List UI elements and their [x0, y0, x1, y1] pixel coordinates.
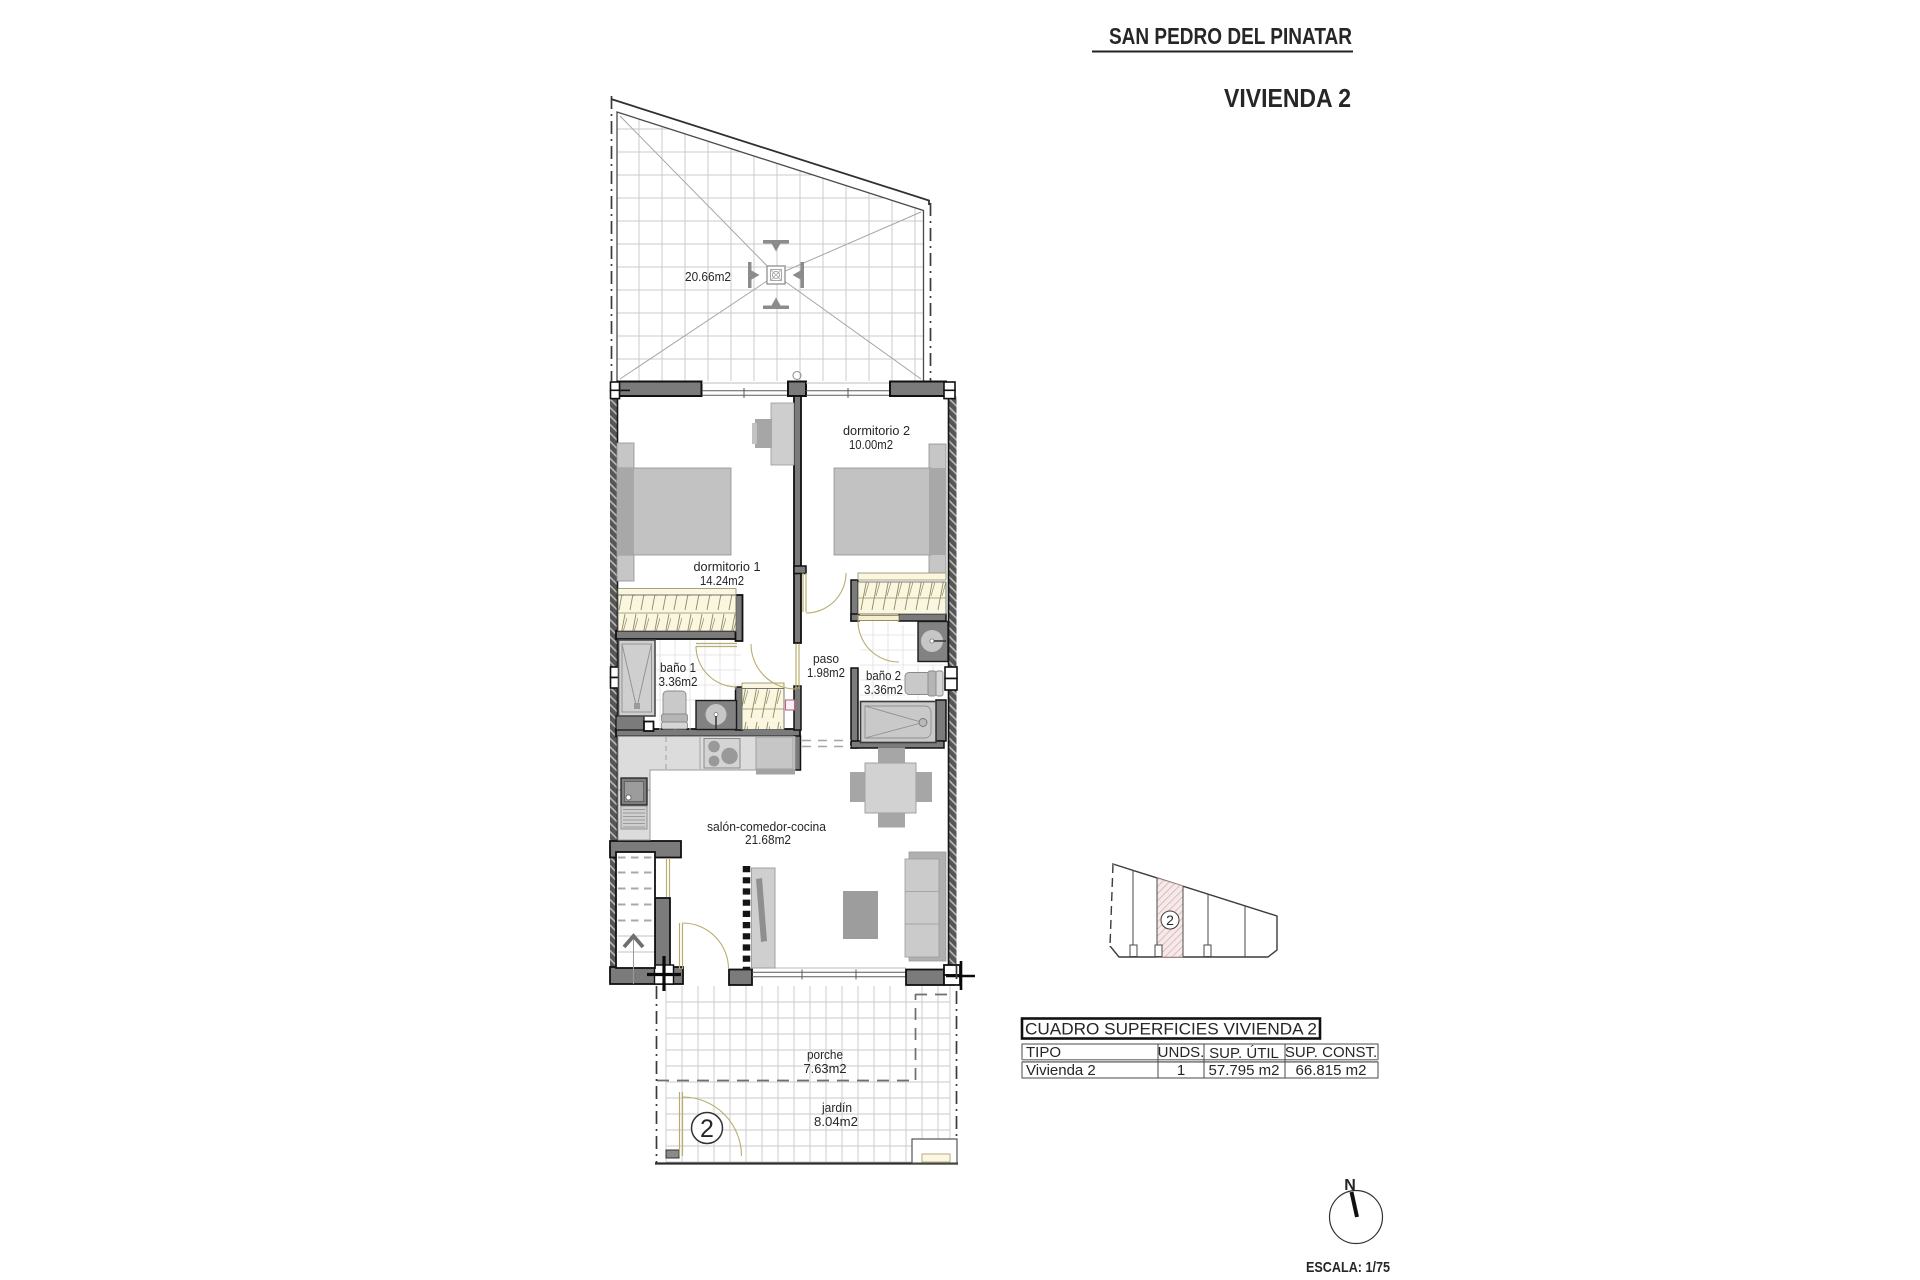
svg-text:14.24m2: 14.24m2: [700, 573, 744, 588]
svg-text:dormitorio 1: dormitorio 1: [694, 559, 761, 574]
svg-text:VIVIENDA 2: VIVIENDA 2: [1224, 83, 1351, 113]
svg-text:21.68m2: 21.68m2: [745, 832, 791, 847]
svg-text:jardín: jardín: [821, 1100, 852, 1115]
svg-text:SAN PEDRO DEL PINATAR: SAN PEDRO DEL PINATAR: [1109, 23, 1352, 49]
svg-text:SUP. CONST.: SUP. CONST.: [1285, 1044, 1377, 1061]
svg-text:N: N: [1344, 1177, 1356, 1194]
svg-text:dormitorio 2: dormitorio 2: [843, 423, 910, 438]
svg-text:7.63m2: 7.63m2: [804, 1061, 847, 1076]
svg-text:8.04m2: 8.04m2: [814, 1114, 858, 1129]
svg-text:3.36m2: 3.36m2: [864, 682, 903, 697]
svg-text:10.00m2: 10.00m2: [849, 437, 893, 452]
svg-text:3.36m2: 3.36m2: [659, 674, 698, 689]
svg-text:20.66m2: 20.66m2: [685, 269, 731, 284]
svg-text:porche: porche: [807, 1047, 843, 1062]
svg-text:CUADRO SUPERFICIES VIVIENDA 2: CUADRO SUPERFICIES VIVIENDA 2: [1025, 1021, 1317, 1039]
svg-text:66.815 m2: 66.815 m2: [1296, 1062, 1367, 1079]
svg-text:UNDS.: UNDS.: [1158, 1044, 1205, 1061]
svg-text:ESCALA: 1/75: ESCALA: 1/75: [1306, 1259, 1390, 1276]
svg-text:TIPO: TIPO: [1026, 1044, 1061, 1061]
svg-text:paso: paso: [813, 651, 839, 666]
svg-text:2: 2: [700, 1115, 714, 1143]
svg-text:baño 2: baño 2: [866, 668, 901, 683]
svg-text:baño 1: baño 1: [660, 660, 696, 675]
svg-text:57.795 m2: 57.795 m2: [1209, 1062, 1280, 1079]
svg-text:SUP. ÚTIL: SUP. ÚTIL: [1209, 1045, 1279, 1062]
svg-text:1.98m2: 1.98m2: [807, 665, 845, 680]
svg-text:1: 1: [1177, 1062, 1185, 1079]
svg-text:2: 2: [1166, 912, 1174, 928]
svg-text:Vivienda 2: Vivienda 2: [1026, 1062, 1096, 1079]
